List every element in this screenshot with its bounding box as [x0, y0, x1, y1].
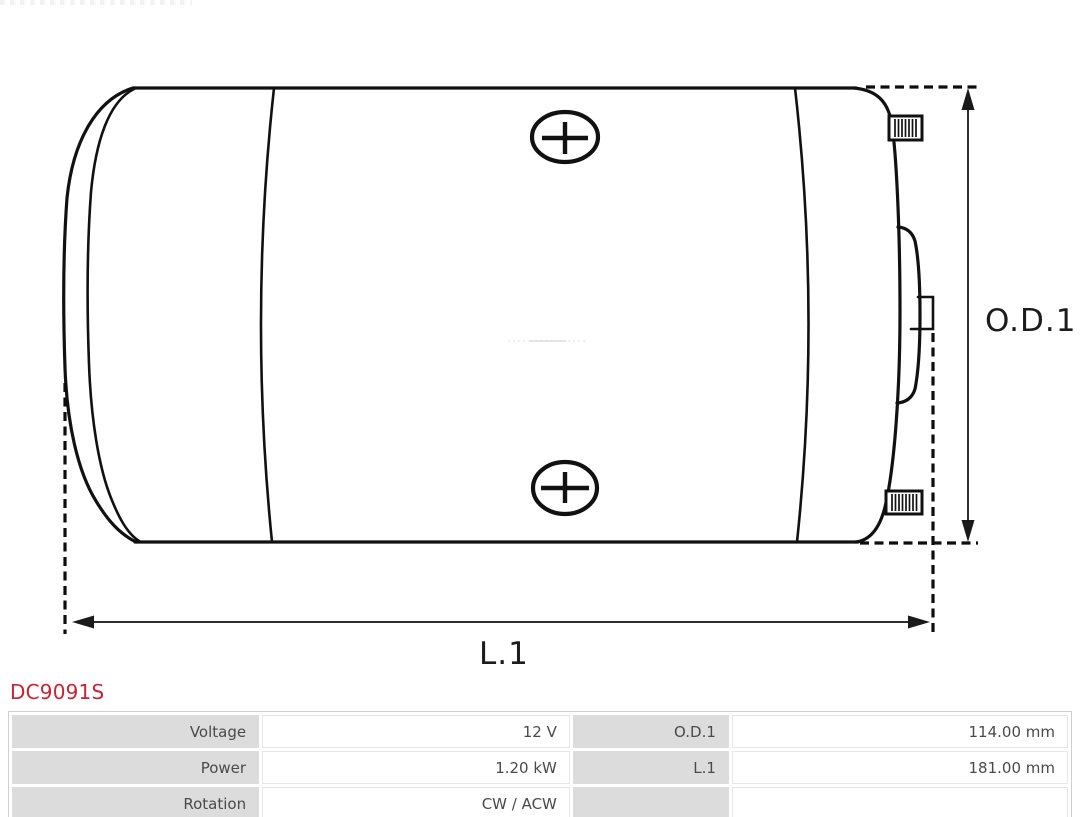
spec-table: Voltage 12 V O.D.1 114.00 mm Power 1.20 … [8, 711, 1072, 817]
l1-label: L.1 [479, 636, 529, 672]
spec-label-empty [573, 787, 729, 817]
dimension-l1: L.1 [72, 616, 930, 673]
spec-label-voltage: Voltage [12, 715, 259, 748]
dimension-od1: O.D.1 [962, 88, 1077, 542]
body-right-silhouette [854, 88, 900, 542]
terminal-stud-bottom [886, 491, 922, 514]
arrowhead-left [72, 616, 94, 629]
arrowhead-right [908, 616, 930, 629]
motor-body-outline [64, 88, 933, 542]
table-row: Voltage 12 V O.D.1 114.00 mm [12, 715, 1068, 748]
table-row: Rotation CW / ACW [12, 787, 1068, 817]
left-endcap-inner-curve [88, 89, 139, 541]
arrowhead-down [962, 520, 975, 542]
part-number: DC9091S [10, 680, 104, 704]
table-row: Power 1.20 kW L.1 181.00 mm [12, 751, 1068, 784]
spec-label-power: Power [12, 751, 259, 784]
spec-label-od1: O.D.1 [573, 715, 729, 748]
screw-icon-top [532, 112, 598, 162]
motor-technical-drawing: O.D.1 L.1 [0, 0, 1080, 676]
left-endcap-outer-curve [64, 88, 136, 542]
extension-lines [65, 87, 978, 634]
spec-value-power: 1.20 kW [262, 751, 570, 784]
spec-label-l1: L.1 [573, 751, 729, 784]
spec-value-od1: 114.00 mm [732, 715, 1068, 748]
product-drawing-page: O.D.1 L.1 DC9091S Voltage 12 V O.D.1 114… [0, 0, 1080, 817]
spec-value-rotation: CW / ACW [262, 787, 570, 817]
spec-label-rotation: Rotation [12, 787, 259, 817]
screw-icon-bottom [533, 462, 597, 514]
spec-value-voltage: 12 V [262, 715, 570, 748]
right-seam-arc [795, 88, 809, 542]
left-seam-arc [261, 88, 274, 542]
spec-value-empty [732, 787, 1068, 817]
shaft-stub [911, 297, 933, 329]
od1-label: O.D.1 [985, 303, 1076, 339]
arrowhead-up [962, 88, 975, 110]
spec-value-l1: 181.00 mm [732, 751, 1068, 784]
terminal-stud-top [889, 116, 922, 140]
